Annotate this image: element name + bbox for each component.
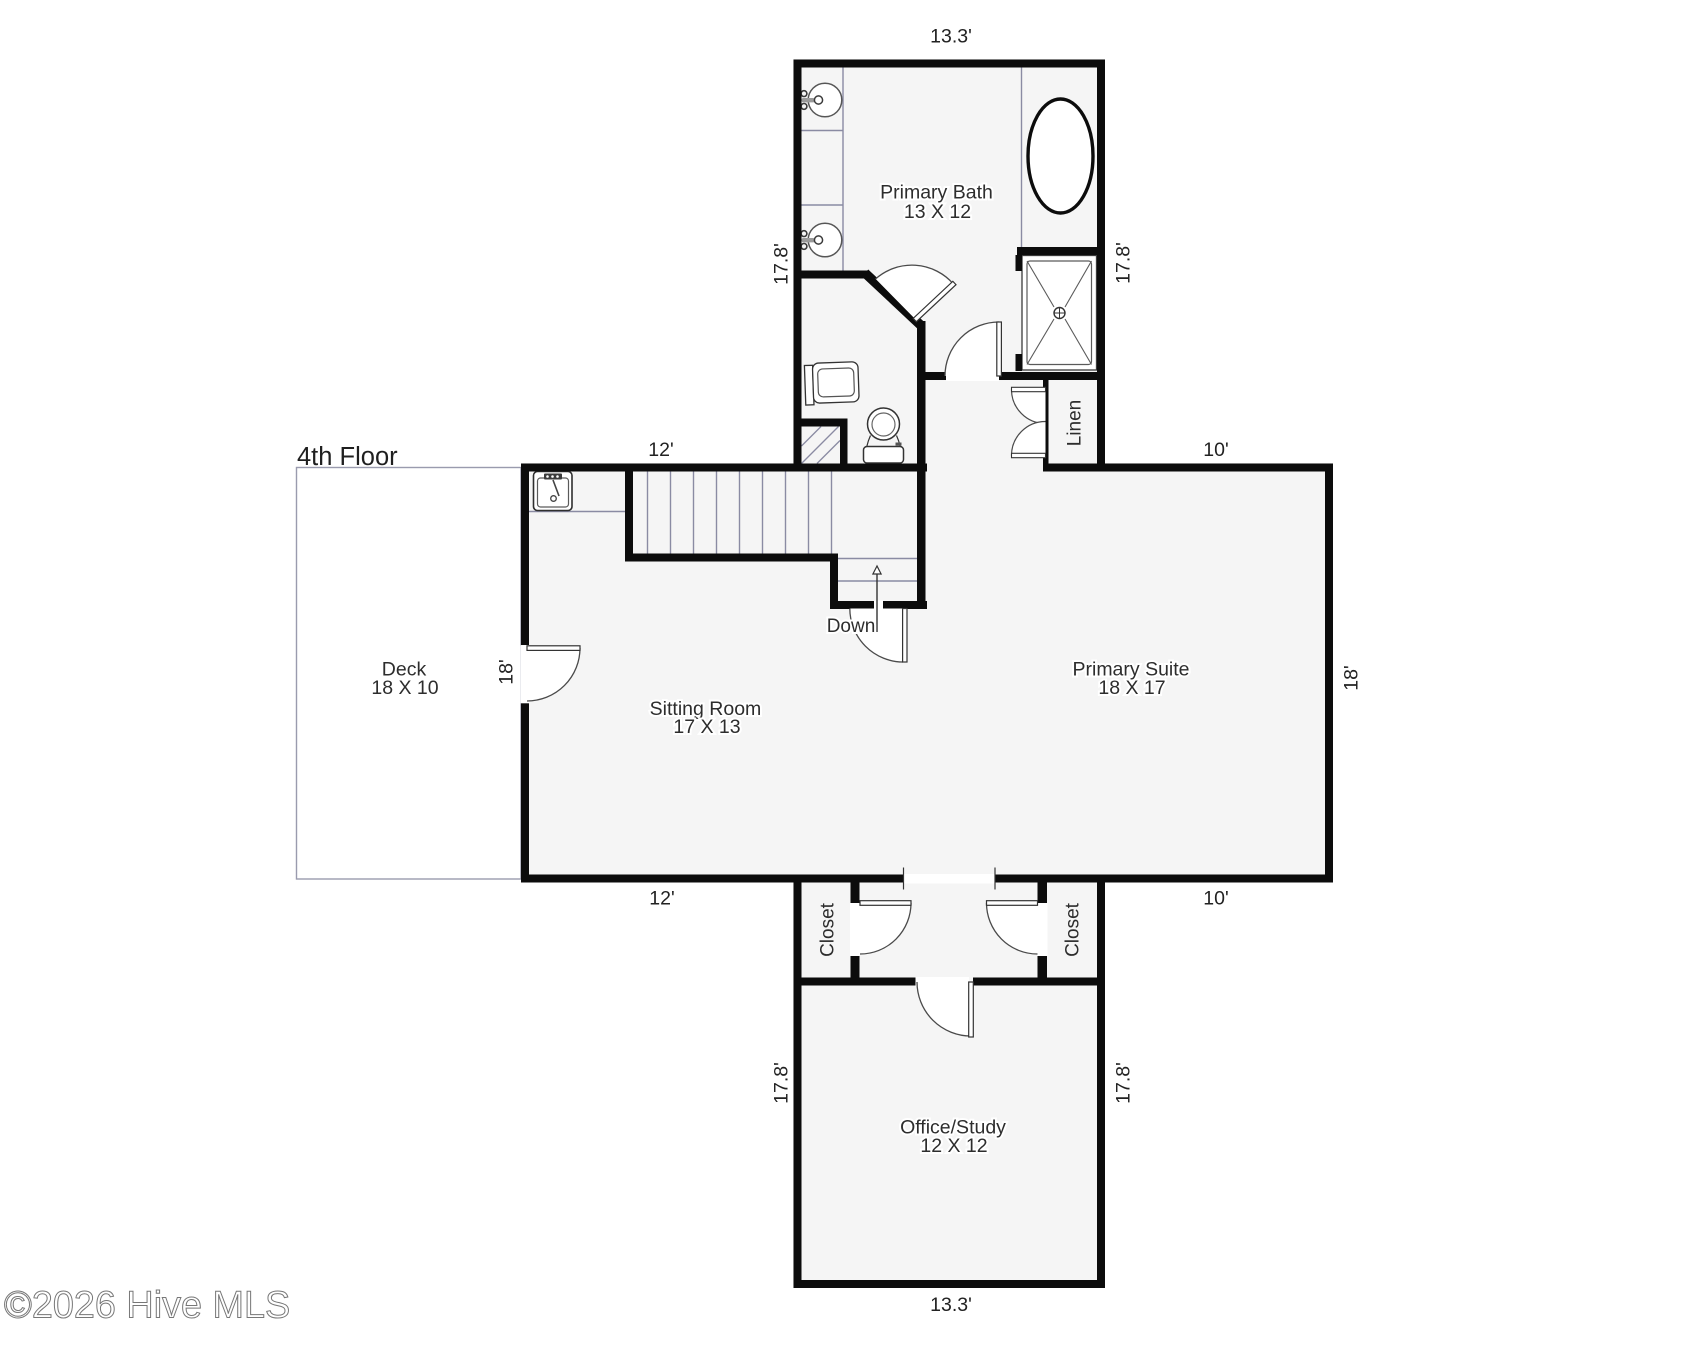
svg-text:17.8': 17.8' bbox=[771, 1062, 793, 1104]
svg-text:18 X 10: 18 X 10 bbox=[371, 677, 438, 699]
svg-text:Closet: Closet bbox=[818, 902, 839, 957]
svg-text:12': 12' bbox=[649, 888, 674, 910]
svg-text:©2026 Hive MLS: ©2026 Hive MLS bbox=[4, 1285, 290, 1327]
svg-text:18 X 17: 18 X 17 bbox=[1098, 677, 1165, 699]
svg-text:17 X 13: 17 X 13 bbox=[673, 716, 740, 738]
svg-text:4th Floor: 4th Floor bbox=[297, 443, 398, 471]
svg-text:17.8': 17.8' bbox=[1113, 1062, 1135, 1104]
svg-text:13.3': 13.3' bbox=[930, 1294, 972, 1316]
svg-text:13.3': 13.3' bbox=[930, 26, 972, 48]
svg-text:12 X 12: 12 X 12 bbox=[920, 1135, 987, 1157]
svg-text:10': 10' bbox=[1203, 888, 1228, 910]
svg-text:12': 12' bbox=[648, 439, 673, 461]
svg-text:17.8': 17.8' bbox=[1113, 242, 1135, 284]
svg-text:17.8': 17.8' bbox=[771, 243, 793, 285]
svg-text:10': 10' bbox=[1203, 439, 1228, 461]
svg-text:Linen: Linen bbox=[1064, 400, 1085, 447]
svg-text:13 X 12: 13 X 12 bbox=[904, 201, 971, 223]
svg-text:18': 18' bbox=[1341, 665, 1363, 690]
svg-text:18': 18' bbox=[496, 659, 518, 684]
svg-text:Down: Down bbox=[827, 616, 876, 637]
svg-text:Closet: Closet bbox=[1063, 902, 1084, 957]
